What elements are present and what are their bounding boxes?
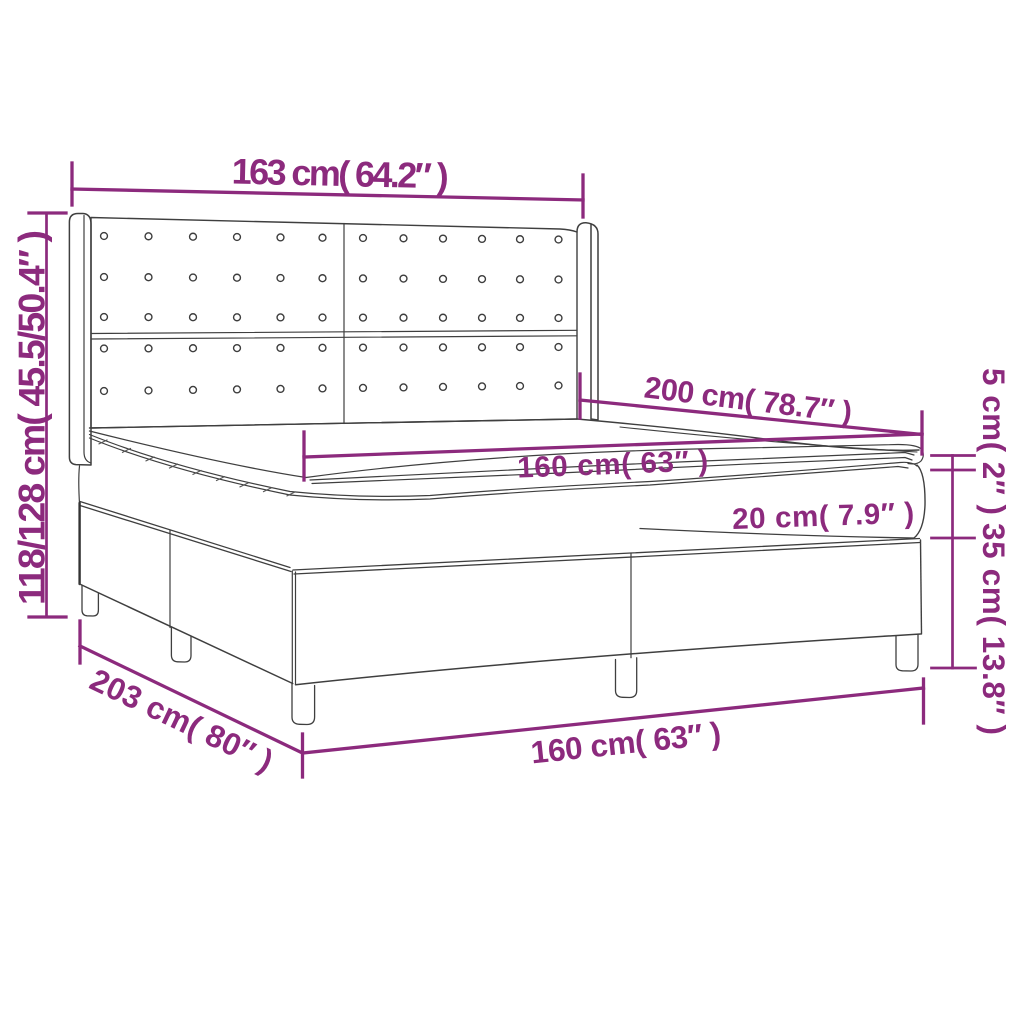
svg-text:35 cm( 13.8″ ): 35 cm( 13.8″ ) [976, 523, 1012, 735]
svg-text:20 cm( 7.9″ ): 20 cm( 7.9″ ) [732, 497, 915, 536]
svg-text:163 cm( 64.2″ ): 163 cm( 64.2″ ) [231, 151, 449, 197]
svg-text:118/128 cm( 45.5/50.4″ ): 118/128 cm( 45.5/50.4″ ) [11, 230, 53, 605]
svg-text:5 cm( 2″ ): 5 cm( 2″ ) [976, 368, 1012, 515]
